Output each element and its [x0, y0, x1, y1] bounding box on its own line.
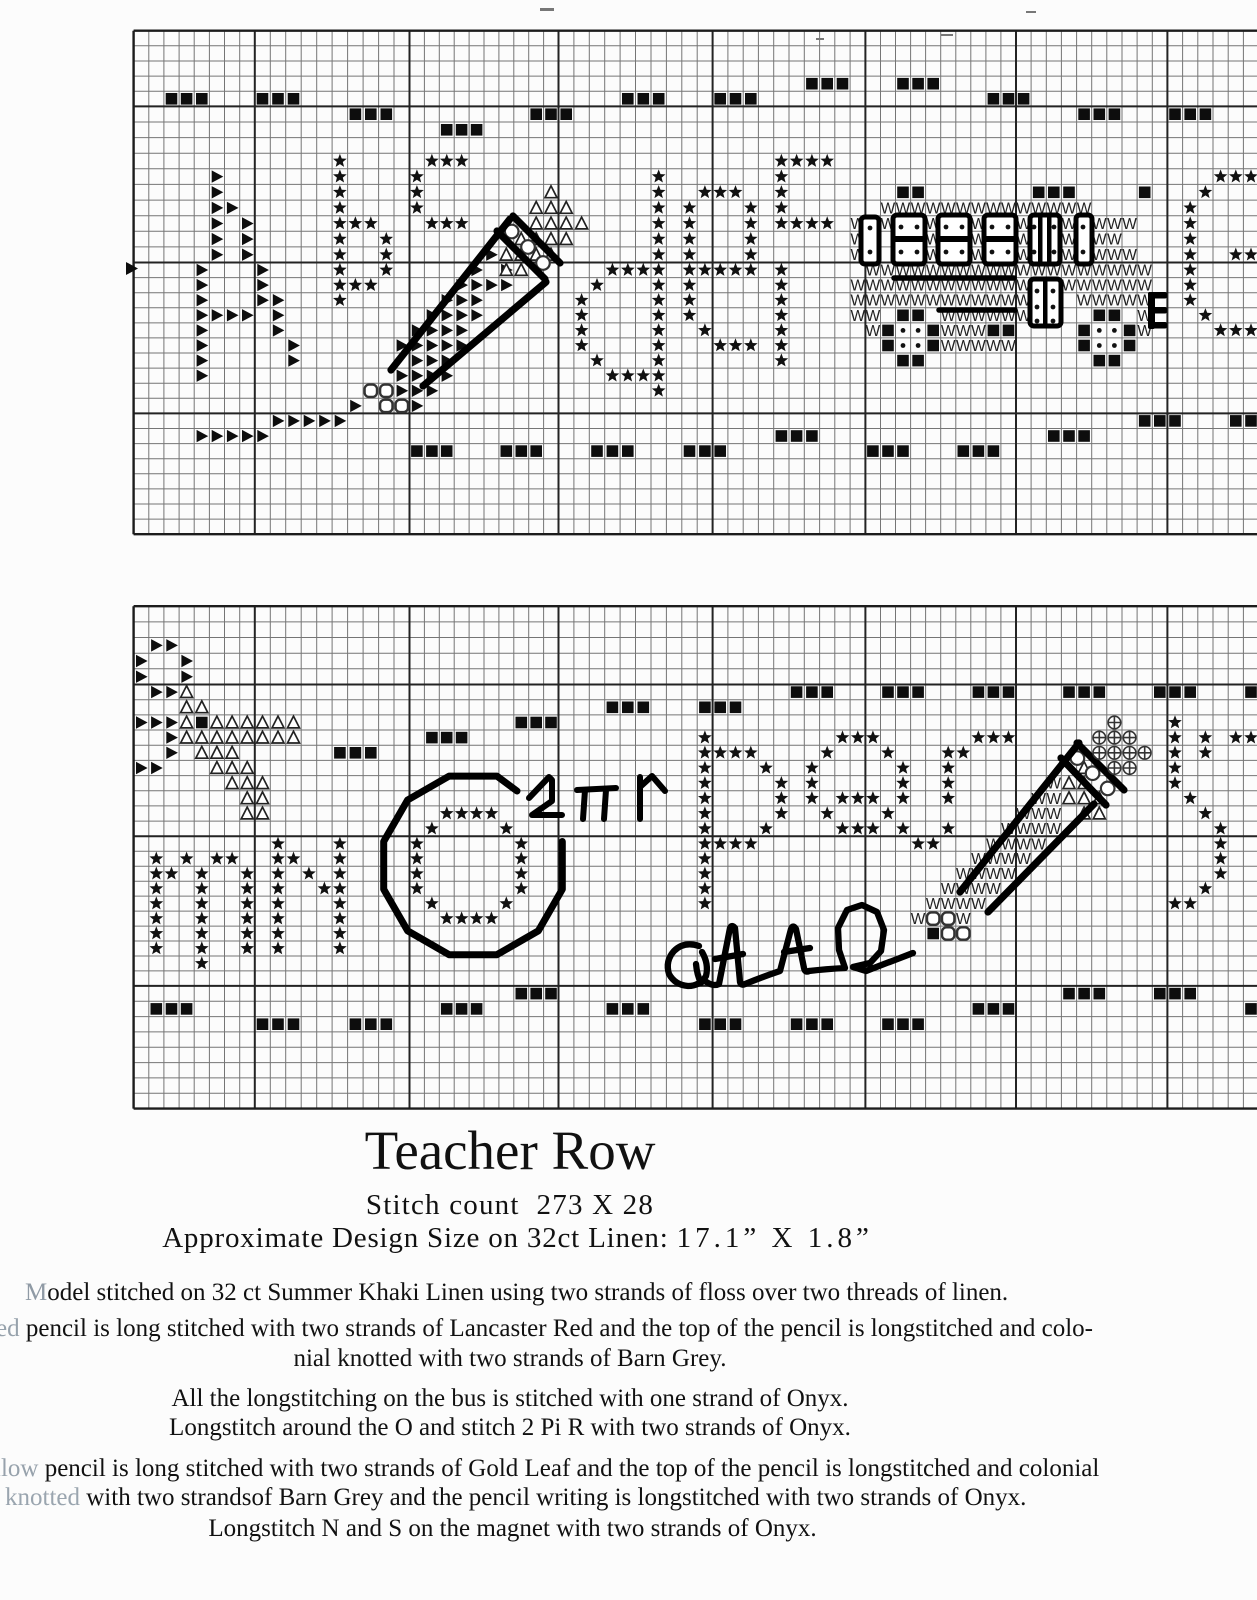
svg-text:W: W [1107, 293, 1122, 310]
svg-text:W: W [1122, 216, 1137, 233]
svg-text:W: W [1077, 293, 1092, 310]
svg-text:W: W [1001, 338, 1016, 355]
svg-text:W: W [1107, 216, 1122, 233]
svg-text:W: W [986, 338, 1001, 355]
svg-text:W: W [866, 323, 881, 340]
svg-text:W: W [941, 338, 956, 355]
svg-text:W: W [1062, 278, 1077, 295]
svg-text:W: W [1122, 293, 1137, 310]
svg-text:W: W [896, 293, 911, 310]
svg-text:W: W [926, 293, 941, 310]
svg-text:W: W [850, 308, 865, 325]
svg-text:W: W [911, 911, 926, 928]
svg-text:W: W [986, 881, 1001, 898]
svg-text:W: W [881, 293, 896, 310]
svg-text:W: W [956, 338, 971, 355]
svg-text:W: W [1092, 293, 1107, 310]
svg-text:W: W [1107, 232, 1122, 249]
svg-text:W: W [971, 896, 986, 913]
svg-text:W: W [971, 338, 986, 355]
svg-text:W: W [941, 896, 956, 913]
svg-text:W: W [1062, 200, 1077, 217]
svg-text:W: W [956, 911, 971, 928]
svg-text:W: W [926, 896, 941, 913]
svg-text:W: W [911, 293, 926, 310]
